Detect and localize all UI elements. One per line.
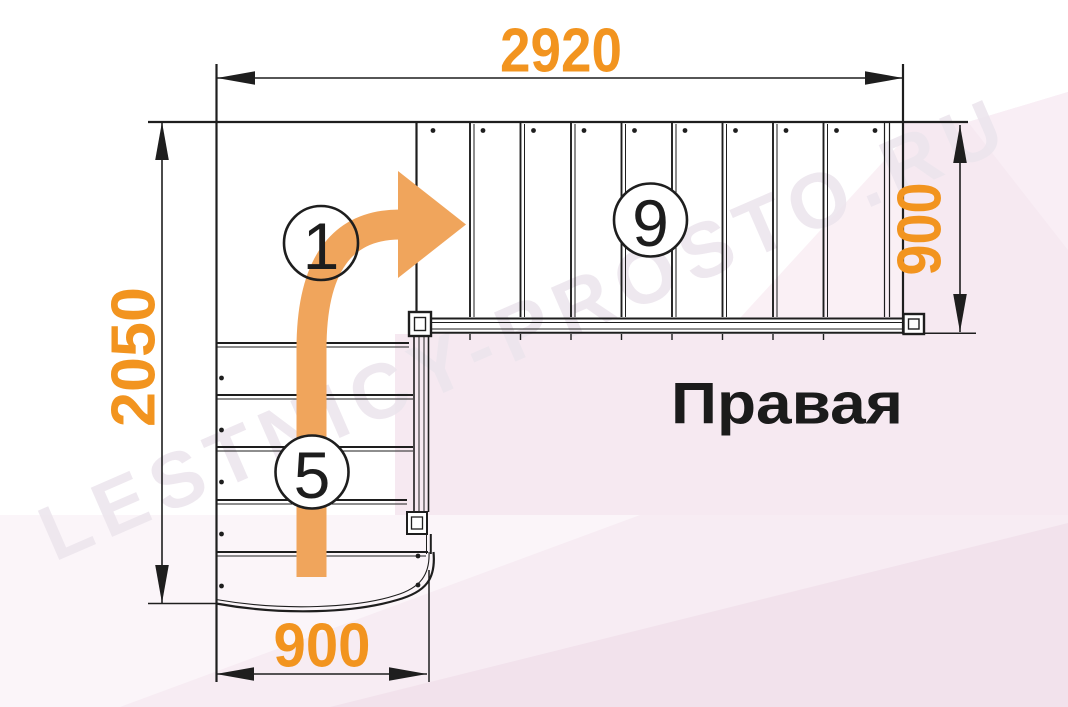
right-post-inner (909, 319, 920, 329)
stair-plan-drawing: LESTNICY-PROSTO.RU (0, 0, 1068, 707)
dimension-bottom-label: 900 (274, 612, 371, 681)
step-marker-9-label: 9 (632, 186, 669, 260)
corner-post-inner (415, 318, 426, 331)
step-marker-1-label: 1 (303, 209, 340, 283)
dimension-left-label: 2050 (100, 287, 169, 427)
orientation-title: Правая (671, 372, 903, 437)
lower-post-inner (412, 517, 423, 529)
dimension-top-label: 2920 (500, 17, 622, 86)
dimension-right-label: 900 (886, 183, 955, 276)
stair-plan-screenshot: LESTNICY-PROSTO.RU (0, 0, 1068, 707)
step-marker-5-label: 5 (294, 438, 331, 512)
